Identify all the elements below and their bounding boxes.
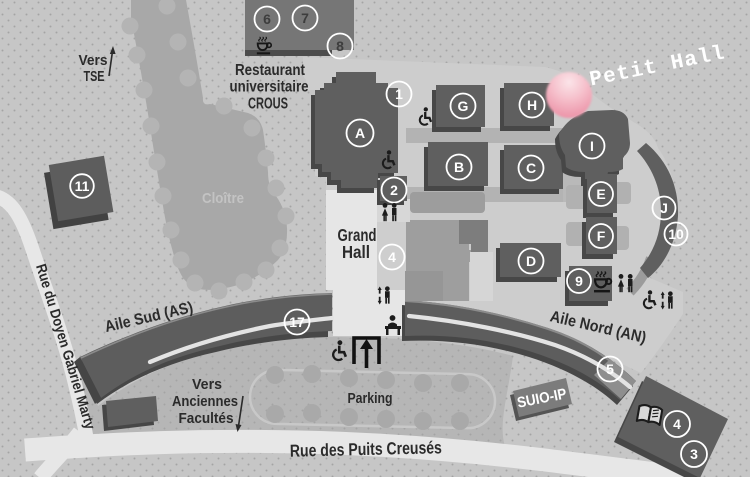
svg-text:Anciennes: Anciennes — [172, 393, 238, 410]
svg-text:A: A — [355, 125, 365, 141]
svg-text:Vers: Vers — [192, 376, 222, 393]
svg-text:17: 17 — [289, 314, 305, 330]
svg-text:TSE: TSE — [84, 68, 105, 85]
svg-text:G: G — [458, 98, 469, 114]
svg-text:1: 1 — [395, 86, 403, 102]
svg-text:4: 4 — [673, 416, 681, 432]
svg-text:4: 4 — [388, 249, 396, 265]
svg-text:Restaurant: Restaurant — [235, 62, 305, 79]
svg-text:CROUS: CROUS — [248, 96, 288, 113]
svg-text:Facultés: Facultés — [179, 410, 234, 427]
svg-text:8: 8 — [336, 38, 344, 54]
svg-text:C: C — [526, 160, 536, 176]
svg-text:Vers: Vers — [79, 52, 108, 69]
svg-text:B: B — [454, 159, 464, 175]
svg-text:6: 6 — [263, 11, 271, 27]
svg-text:10: 10 — [668, 226, 684, 242]
svg-text:3: 3 — [690, 446, 698, 462]
svg-text:I: I — [590, 138, 594, 154]
svg-text:E: E — [596, 186, 605, 202]
svg-text:D: D — [526, 253, 536, 269]
svg-text:7: 7 — [301, 10, 309, 26]
svg-text:H: H — [527, 97, 537, 113]
svg-text:Parking: Parking — [348, 390, 393, 407]
svg-text:11: 11 — [75, 178, 90, 194]
svg-text:Hall: Hall — [342, 242, 370, 262]
svg-text:J: J — [660, 200, 668, 216]
svg-text:Rue des Puits Creusés: Rue des Puits Creusés — [290, 437, 443, 460]
svg-text:F: F — [597, 228, 606, 244]
svg-text:9: 9 — [575, 273, 583, 289]
svg-text:5: 5 — [606, 361, 614, 377]
svg-text:2: 2 — [390, 182, 398, 198]
svg-text:universitaire: universitaire — [230, 79, 309, 96]
svg-text:Cloître: Cloître — [202, 190, 244, 207]
